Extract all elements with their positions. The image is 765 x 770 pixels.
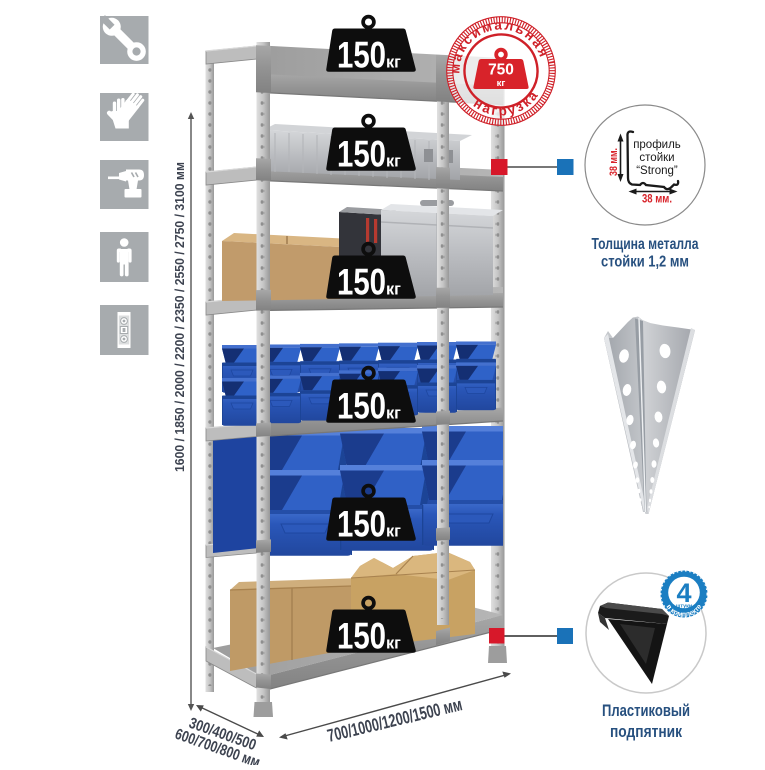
svg-text:кг: кг: [497, 78, 506, 89]
svg-text:штуки: штуки: [676, 604, 692, 610]
svg-text:38 мм.: 38 мм.: [642, 192, 672, 206]
svg-text:38 мм.: 38 мм.: [608, 148, 620, 176]
svg-text:“Strong”: “Strong”: [636, 165, 678, 177]
svg-text:750: 750: [488, 62, 514, 79]
svg-text:стойки: стойки: [639, 152, 674, 164]
svg-text:Толщина металла: Толщина металла: [592, 236, 699, 253]
svg-text:стойки 1,2 мм: стойки 1,2 мм: [601, 254, 689, 271]
svg-text:700/1000/1200/1500 мм: 700/1000/1200/1500 мм: [325, 694, 464, 746]
svg-text:профиль: профиль: [633, 139, 681, 151]
svg-text:1600 / 1850 / 2000 / 2200 / 23: 1600 / 1850 / 2000 / 2200 / 2350 / 2550 …: [172, 162, 187, 472]
svg-text:подпятник: подпятник: [610, 722, 682, 741]
svg-text:Пластиковый: Пластиковый: [602, 701, 690, 720]
